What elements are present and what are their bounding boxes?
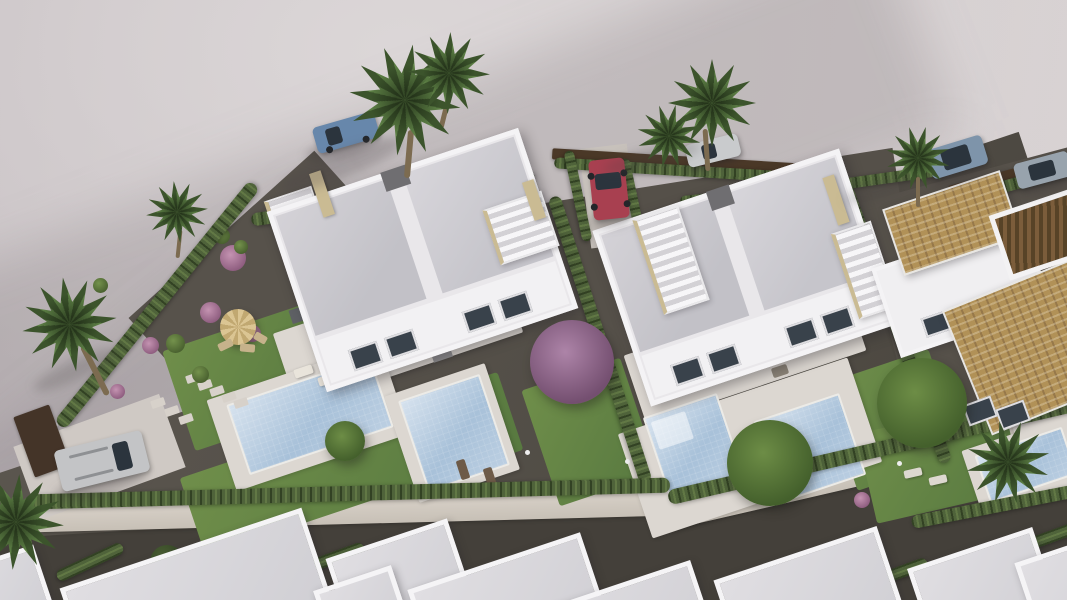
- shrub-green: [234, 240, 248, 254]
- wheel: [587, 172, 595, 180]
- garden-tree: [727, 420, 813, 506]
- garden-tree: [325, 421, 365, 461]
- shrub-green: [166, 334, 185, 353]
- palm-trunk: [916, 177, 920, 207]
- aerial-render-scene: [0, 0, 1067, 600]
- shrub-green: [93, 278, 108, 293]
- garden-lamp: [625, 459, 630, 464]
- garden-lamp: [897, 461, 902, 466]
- shrub-green: [192, 366, 209, 383]
- roof-rail: [69, 446, 109, 459]
- roof-rail: [74, 469, 114, 482]
- garden-chair: [240, 343, 256, 352]
- windshield: [594, 172, 622, 191]
- windshield: [111, 440, 133, 471]
- windshield: [940, 144, 973, 171]
- windshield: [324, 126, 343, 146]
- garden-lamp: [525, 450, 530, 455]
- garden-tree: [877, 358, 967, 448]
- flower-bush-pink: [142, 337, 159, 354]
- windshield: [1027, 159, 1056, 181]
- wheel: [590, 203, 598, 211]
- purple-flowering-tree: [530, 320, 614, 404]
- flower-bush-pink: [200, 302, 221, 323]
- flower-bush-pink: [854, 492, 870, 508]
- flower-bush-pink: [110, 384, 125, 399]
- pool-steps: [651, 411, 694, 450]
